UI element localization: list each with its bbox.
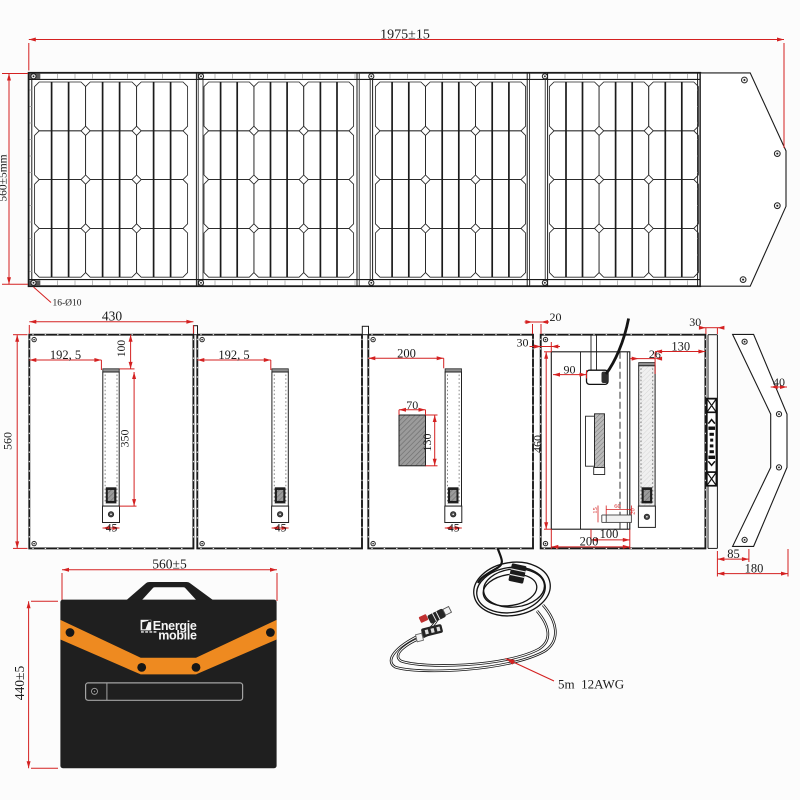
svg-text:20: 20 bbox=[630, 508, 637, 515]
svg-text:180: 180 bbox=[745, 562, 764, 576]
svg-text:30: 30 bbox=[689, 315, 701, 329]
svg-text:85: 85 bbox=[727, 547, 740, 561]
svg-text:90: 90 bbox=[564, 363, 576, 377]
svg-text:16-Ø10: 16-Ø10 bbox=[52, 299, 81, 309]
svg-text:350: 350 bbox=[118, 430, 132, 448]
svg-text:1975±15: 1975±15 bbox=[380, 28, 430, 43]
svg-text:440±5: 440±5 bbox=[12, 666, 27, 701]
svg-text:200: 200 bbox=[580, 534, 599, 548]
svg-text:560±5: 560±5 bbox=[152, 557, 187, 572]
svg-text:130: 130 bbox=[671, 340, 690, 354]
svg-text:460: 460 bbox=[531, 435, 545, 453]
svg-text:45: 45 bbox=[106, 523, 118, 535]
svg-text:560: 560 bbox=[1, 432, 15, 450]
svg-text:430: 430 bbox=[102, 309, 123, 324]
svg-text:30: 30 bbox=[517, 335, 529, 349]
svg-text:45: 45 bbox=[448, 523, 460, 535]
svg-text:40: 40 bbox=[773, 375, 785, 389]
svg-text:60: 60 bbox=[614, 503, 621, 510]
svg-text:45: 45 bbox=[275, 523, 287, 535]
svg-text:192, 5: 192, 5 bbox=[50, 348, 81, 362]
svg-text:192, 5: 192, 5 bbox=[218, 348, 249, 362]
svg-text:mobile: mobile bbox=[158, 629, 197, 643]
svg-text:26: 26 bbox=[649, 347, 661, 361]
svg-text:20: 20 bbox=[550, 310, 562, 324]
svg-text:100: 100 bbox=[116, 340, 128, 358]
svg-text:200: 200 bbox=[397, 346, 416, 360]
svg-text:130: 130 bbox=[420, 434, 434, 452]
svg-text:70: 70 bbox=[406, 398, 418, 412]
svg-text:5m 12AWG: 5m 12AWG bbox=[558, 677, 624, 692]
svg-text:560±5mm: 560±5mm bbox=[0, 154, 10, 201]
svg-text:100: 100 bbox=[600, 527, 619, 541]
svg-text:15: 15 bbox=[592, 507, 599, 514]
